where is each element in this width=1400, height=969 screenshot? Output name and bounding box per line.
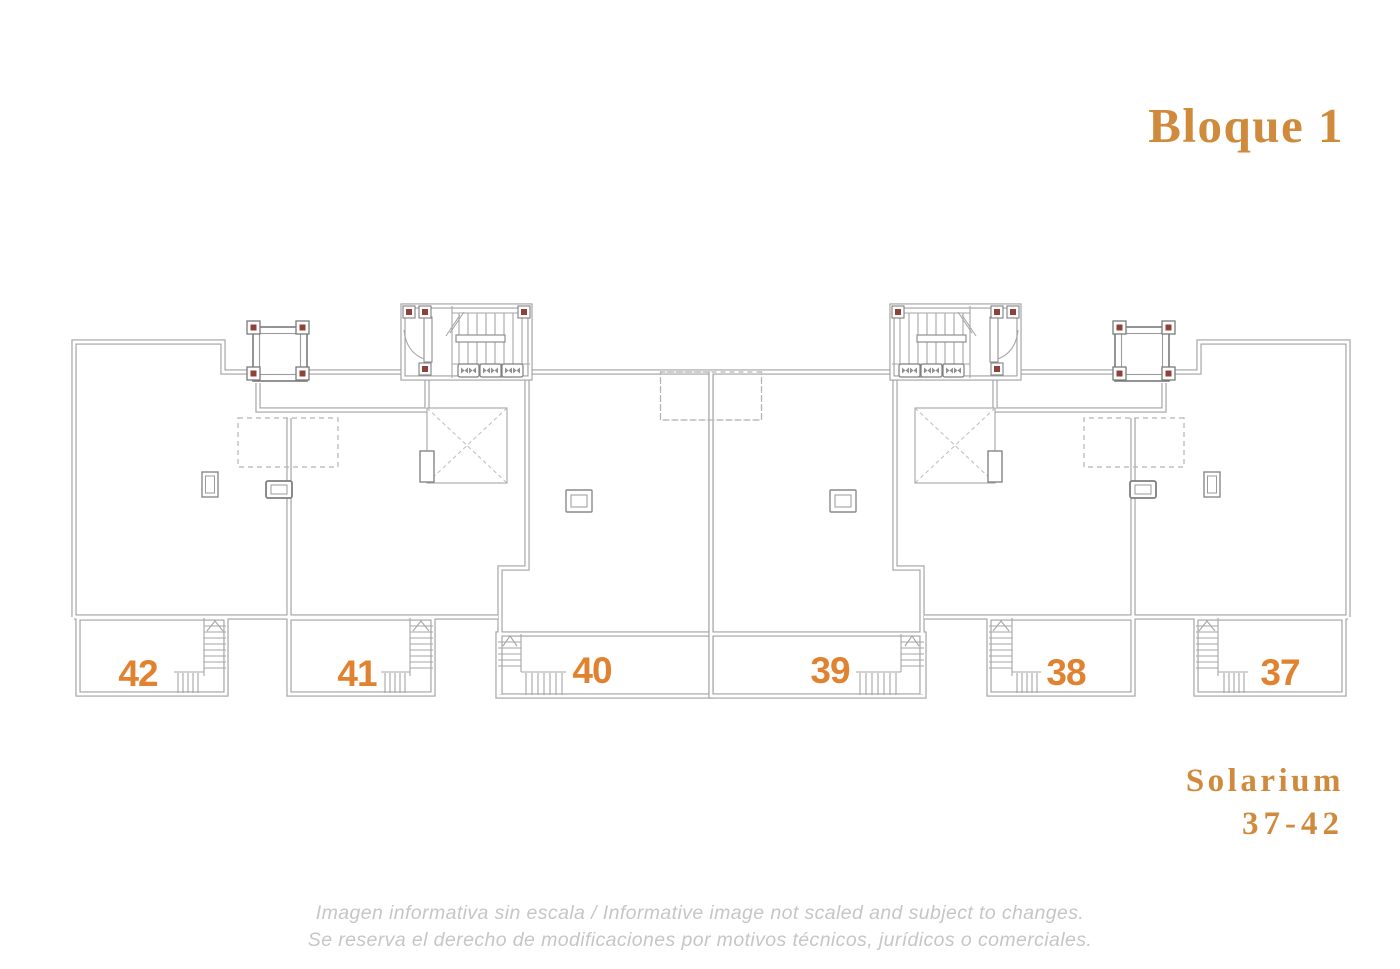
disclaimer: Imagen informativa sin escala / Informat…	[0, 900, 1400, 954]
unit-label-41: 41	[337, 653, 376, 695]
unit-label-38: 38	[1046, 652, 1085, 694]
unit-label-40: 40	[572, 650, 611, 692]
unit-label-37: 37	[1260, 652, 1299, 694]
unit-label-39: 39	[810, 650, 849, 692]
page: Bloque 1	[0, 0, 1400, 969]
plan-caption: Solarium 37-42	[1186, 760, 1344, 846]
disclaimer-line2: Se reserva el derecho de modificaciones …	[0, 927, 1400, 954]
unit-label-42: 42	[118, 653, 157, 695]
caption-line1: Solarium	[1186, 760, 1344, 803]
caption-line2: 37-42	[1186, 803, 1344, 846]
disclaimer-line1: Imagen informativa sin escala / Informat…	[0, 900, 1400, 927]
